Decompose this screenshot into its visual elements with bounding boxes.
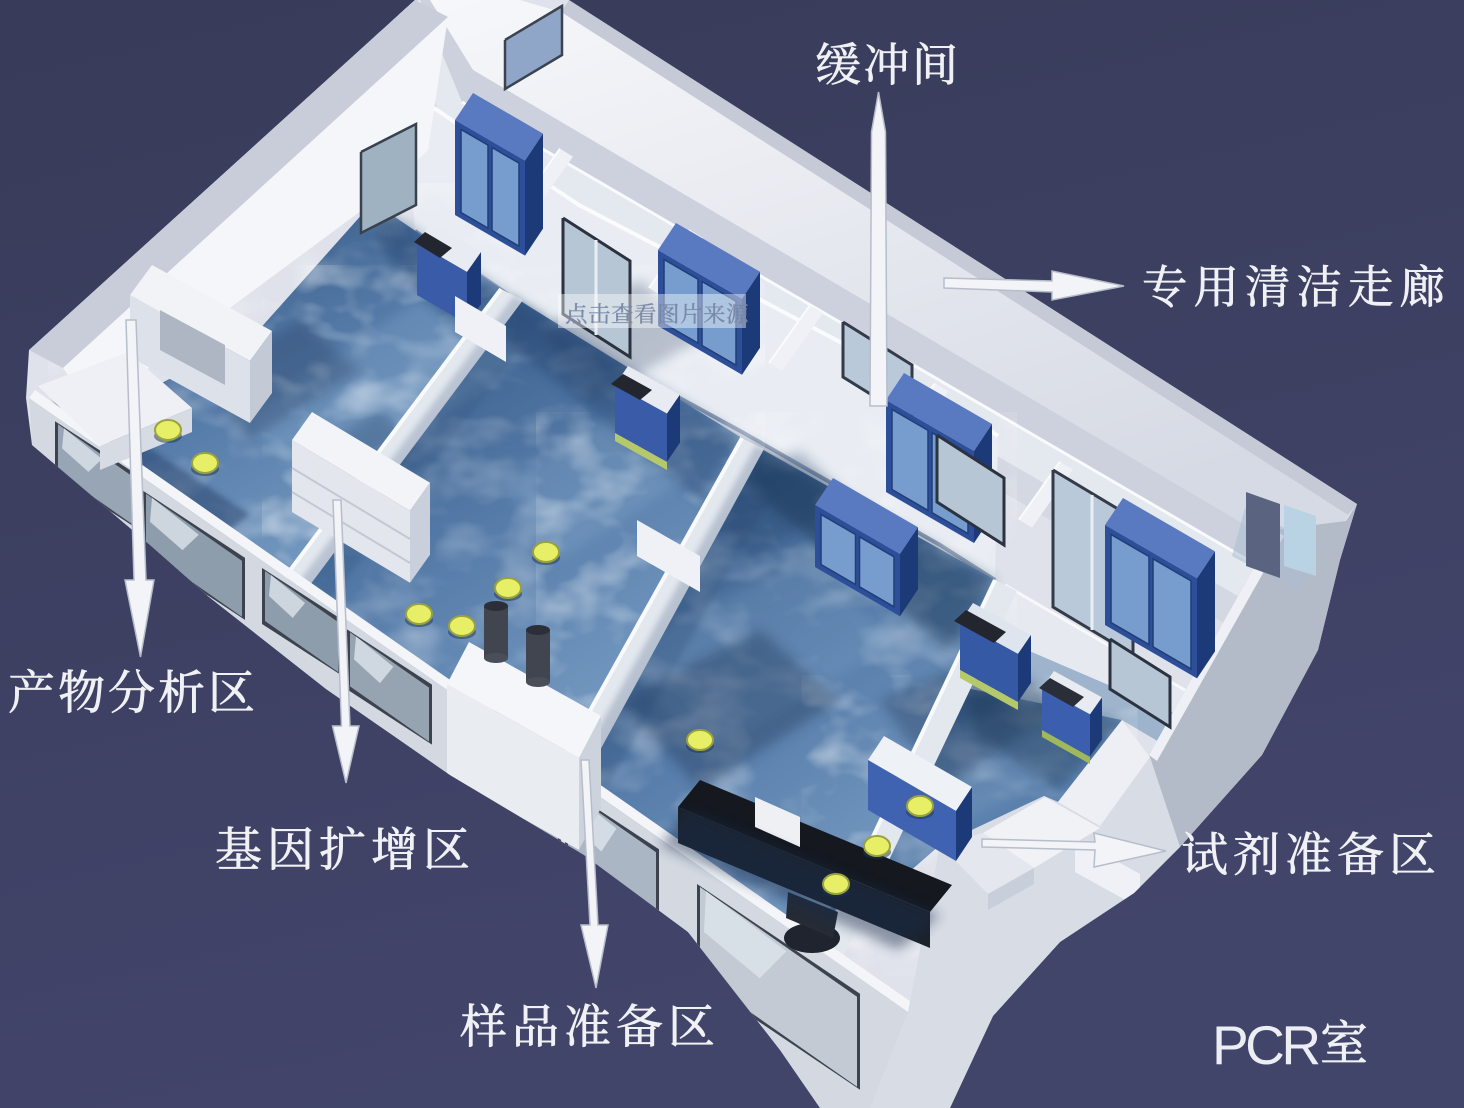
svg-text:PCR: PCR — [1212, 1014, 1319, 1076]
